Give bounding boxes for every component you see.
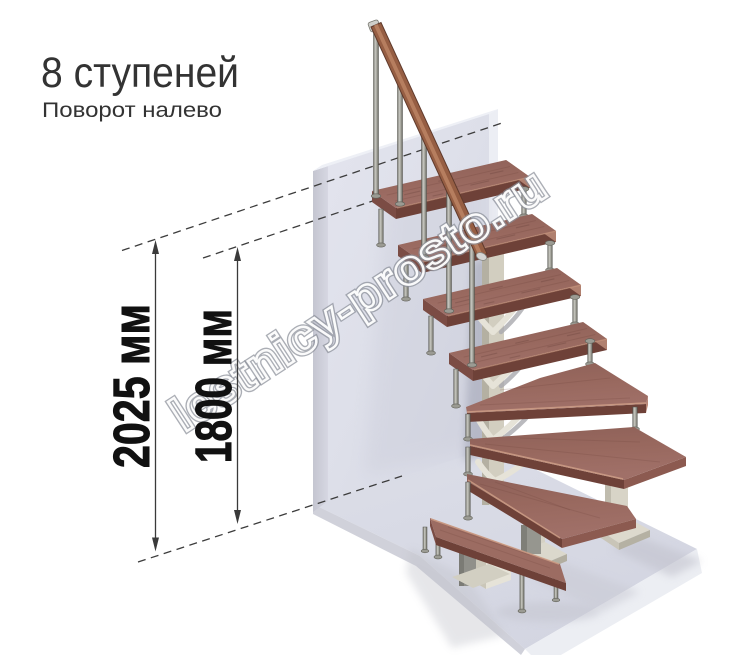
svg-text:Поворот налево: Поворот налево: [42, 99, 222, 122]
svg-text:8 ступеней: 8 ступеней: [41, 50, 239, 97]
svg-text:1800 мм: 1800 мм: [185, 309, 242, 463]
svg-text:2025 мм: 2025 мм: [103, 304, 160, 468]
